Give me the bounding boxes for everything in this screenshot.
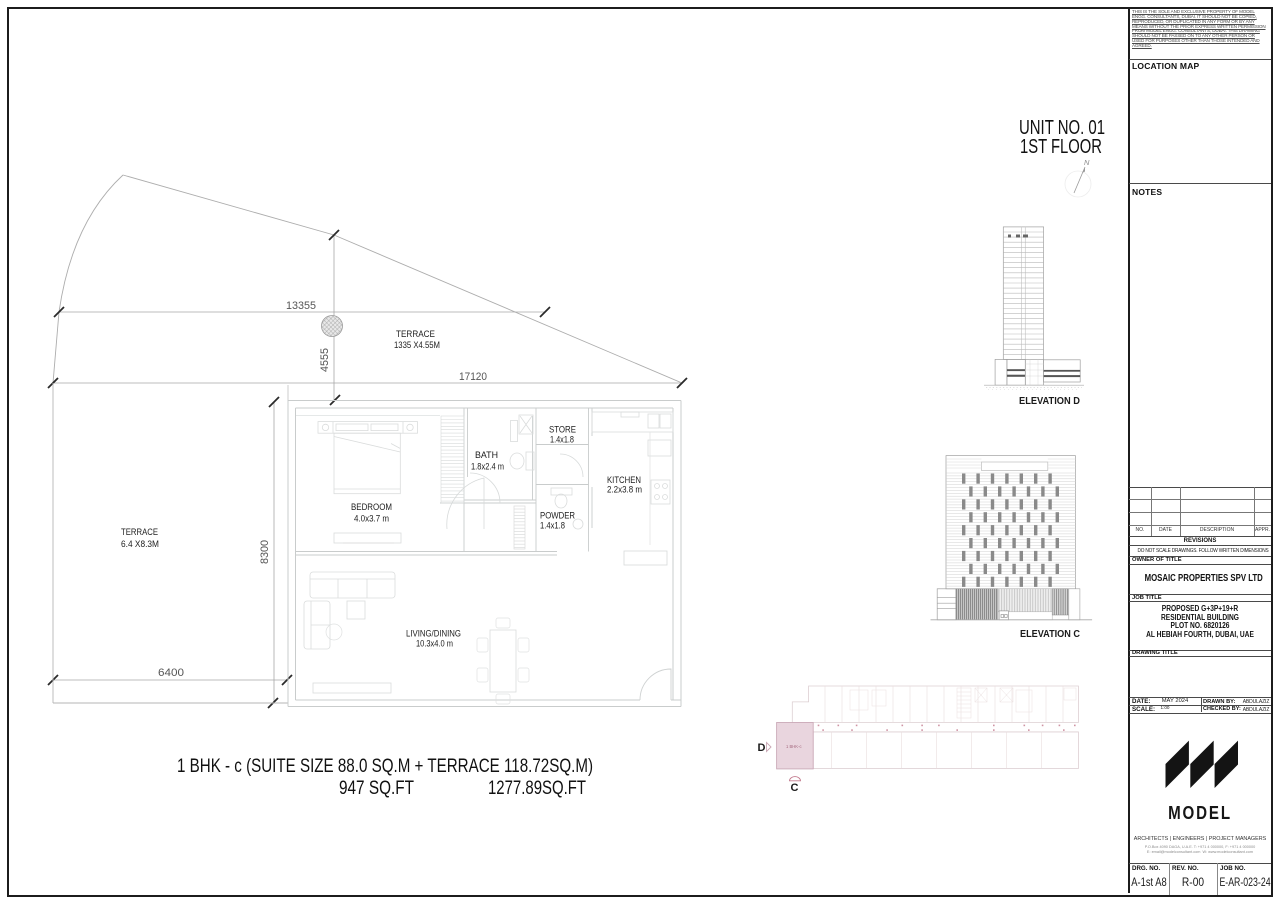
svg-text:ELEVATION D: ELEVATION D: [1019, 395, 1080, 407]
svg-text:13355: 13355: [286, 300, 316, 312]
svg-text:4555: 4555: [319, 348, 331, 372]
svg-text:1 BHK-c: 1 BHK-c: [786, 744, 802, 749]
svg-text:1 BHK - c (SUITE SIZE 88.0 SQ.: 1 BHK - c (SUITE SIZE 88.0 SQ.M + TERRAC…: [177, 755, 593, 777]
svg-text:1335 X4.55M: 1335 X4.55M: [394, 340, 440, 350]
svg-text:LIVING/DINING: LIVING/DINING: [406, 629, 461, 639]
svg-text:N: N: [1084, 158, 1090, 167]
svg-text:BATH: BATH: [475, 450, 498, 460]
svg-text:D: D: [758, 742, 766, 754]
svg-text:ELEVATION C: ELEVATION C: [1020, 628, 1080, 640]
svg-text:KITCHEN: KITCHEN: [607, 475, 641, 485]
svg-text:1ST FLOOR: 1ST FLOOR: [1020, 136, 1102, 158]
svg-text:1277.89SQ.FT: 1277.89SQ.FT: [488, 777, 586, 799]
svg-text:947 SQ.FT: 947 SQ.FT: [339, 777, 414, 799]
svg-text:TERRACE: TERRACE: [396, 329, 435, 339]
svg-text:1.8x2.4 m: 1.8x2.4 m: [471, 462, 504, 472]
svg-text:2.2x3.8 m: 2.2x3.8 m: [607, 485, 642, 495]
svg-text:4.0x3.7 m: 4.0x3.7 m: [354, 514, 389, 524]
svg-text:1.4x1.8: 1.4x1.8: [550, 434, 574, 444]
svg-text:C: C: [791, 782, 799, 794]
svg-text:TERRACE: TERRACE: [121, 527, 158, 537]
svg-text:POWDER: POWDER: [540, 511, 575, 521]
svg-text:6.4 X8.3M: 6.4 X8.3M: [121, 539, 159, 549]
svg-text:1.4x1.8: 1.4x1.8: [540, 521, 565, 531]
svg-text:10.3x4.0 m: 10.3x4.0 m: [416, 639, 453, 649]
svg-text:6400: 6400: [158, 667, 184, 679]
svg-text:STORE: STORE: [549, 425, 576, 435]
svg-text:8300: 8300: [259, 540, 271, 564]
svg-text:17120: 17120: [459, 371, 487, 383]
svg-text:BEDROOM: BEDROOM: [351, 502, 392, 512]
